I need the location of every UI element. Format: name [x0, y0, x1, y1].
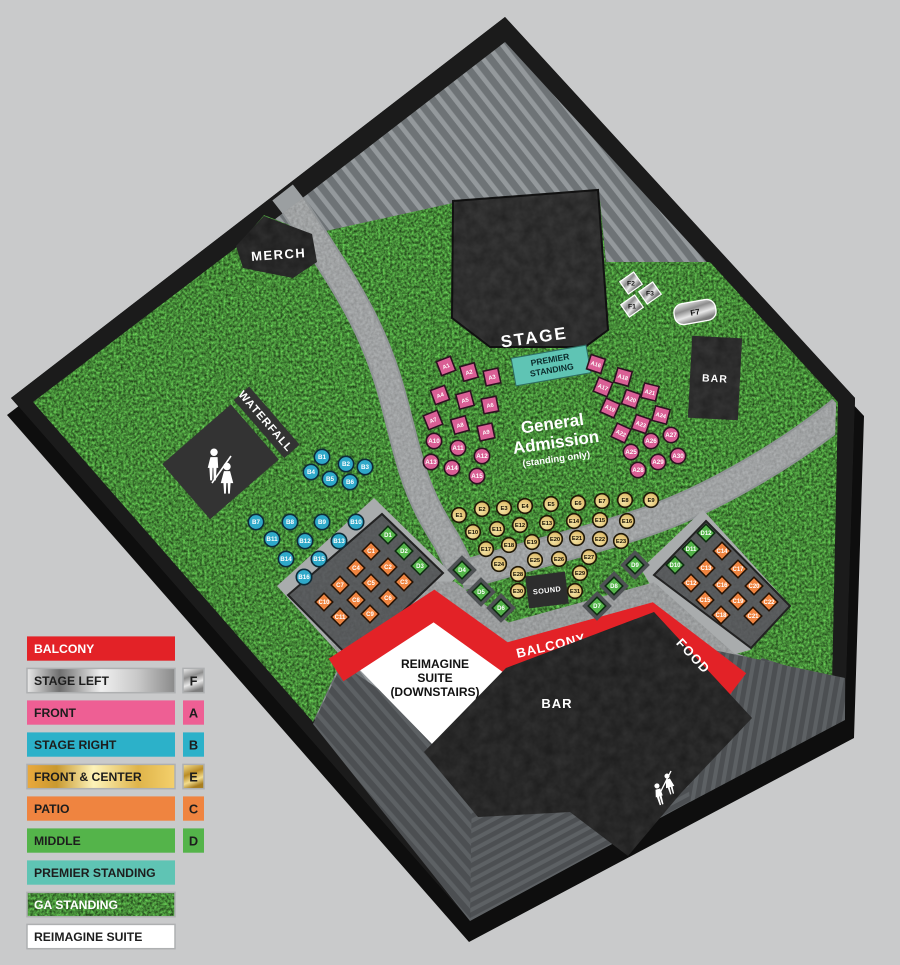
svg-text:C15: C15 [699, 598, 711, 604]
svg-text:C8: C8 [352, 598, 360, 604]
svg-text:E13: E13 [542, 521, 553, 527]
svg-text:A28: A28 [632, 467, 644, 474]
svg-text:E11: E11 [492, 527, 503, 533]
svg-text:C13: C13 [700, 566, 712, 572]
svg-text:C20: C20 [748, 584, 760, 590]
svg-text:B6: B6 [346, 479, 355, 486]
svg-text:C6: C6 [384, 596, 392, 602]
svg-text:A14: A14 [446, 465, 458, 472]
svg-text:(DOWNSTAIRS): (DOWNSTAIRS) [390, 685, 479, 699]
svg-text:A: A [189, 705, 198, 720]
svg-text:C5: C5 [367, 581, 375, 587]
svg-text:E12: E12 [515, 523, 525, 529]
svg-text:B4: B4 [307, 469, 316, 476]
svg-text:C7: C7 [336, 583, 344, 589]
svg-text:C1: C1 [367, 549, 375, 555]
svg-text:PATIO: PATIO [34, 802, 69, 816]
svg-text:A13: A13 [425, 459, 437, 466]
svg-text:C2: C2 [384, 565, 392, 571]
svg-text:C10: C10 [318, 600, 330, 606]
svg-text:D9: D9 [631, 563, 639, 569]
svg-text:F2: F2 [627, 281, 635, 288]
svg-text:BALCONY: BALCONY [34, 642, 94, 656]
svg-text:E28: E28 [513, 572, 524, 578]
svg-text:BAR: BAR [702, 372, 728, 385]
svg-text:B13: B13 [333, 538, 345, 545]
svg-text:C21: C21 [747, 614, 759, 620]
svg-text:D1: D1 [384, 533, 392, 539]
svg-text:E6: E6 [574, 501, 582, 507]
svg-text:B10: B10 [350, 519, 362, 526]
svg-text:BAR: BAR [541, 696, 572, 711]
svg-text:C12: C12 [685, 581, 697, 587]
svg-text:FRONT & CENTER: FRONT & CENTER [34, 770, 142, 784]
svg-text:A27: A27 [665, 432, 677, 439]
svg-text:C11: C11 [335, 615, 346, 621]
svg-text:E4: E4 [521, 504, 529, 510]
svg-text:A25: A25 [625, 449, 637, 456]
svg-text:D5: D5 [477, 590, 485, 596]
svg-text:B3: B3 [361, 464, 370, 471]
svg-text:REIMAGINE SUITE: REIMAGINE SUITE [34, 930, 142, 944]
svg-text:C17: C17 [732, 567, 744, 573]
svg-text:REIMAGINE: REIMAGINE [401, 657, 469, 671]
svg-text:E10: E10 [468, 530, 478, 536]
svg-text:C18: C18 [715, 613, 727, 619]
svg-text:B2: B2 [342, 461, 351, 468]
svg-text:E19: E19 [527, 540, 538, 546]
svg-text:A11: A11 [452, 445, 464, 452]
svg-text:B9: B9 [318, 519, 327, 526]
svg-text:E7: E7 [598, 499, 605, 505]
svg-text:C3: C3 [400, 580, 408, 586]
svg-text:STAGE LEFT: STAGE LEFT [34, 674, 109, 688]
svg-text:C9: C9 [366, 612, 374, 618]
svg-text:C: C [189, 801, 198, 816]
svg-text:E30: E30 [513, 589, 523, 595]
svg-text:B7: B7 [252, 519, 261, 526]
svg-text:E24: E24 [494, 562, 505, 568]
svg-text:E21: E21 [572, 536, 583, 542]
svg-text:D11: D11 [686, 547, 697, 553]
svg-text:PREMIER STANDING: PREMIER STANDING [34, 866, 156, 880]
svg-text:A10: A10 [428, 438, 440, 445]
svg-text:E17: E17 [481, 547, 491, 553]
svg-text:D10: D10 [669, 563, 681, 569]
svg-text:E20: E20 [550, 537, 560, 543]
svg-text:E9: E9 [647, 498, 655, 504]
svg-text:A30: A30 [672, 453, 684, 460]
svg-text:E25: E25 [530, 558, 541, 564]
svg-text:E16: E16 [622, 519, 633, 525]
svg-text:E3: E3 [500, 506, 508, 512]
svg-text:A12: A12 [476, 453, 488, 460]
svg-text:D3: D3 [416, 564, 424, 570]
svg-text:D: D [189, 833, 198, 848]
svg-text:C14: C14 [716, 549, 728, 555]
svg-text:E5: E5 [547, 502, 555, 508]
svg-text:D2: D2 [400, 549, 408, 555]
svg-text:MIDDLE: MIDDLE [34, 834, 81, 848]
svg-text:D12: D12 [700, 531, 712, 537]
svg-text:F3: F3 [646, 291, 654, 298]
svg-text:E29: E29 [575, 571, 586, 577]
svg-text:C4: C4 [352, 566, 360, 572]
svg-text:E2: E2 [478, 507, 485, 513]
svg-text:B11: B11 [266, 536, 278, 543]
svg-text:B16: B16 [298, 574, 310, 581]
svg-text:STAGE RIGHT: STAGE RIGHT [34, 738, 117, 752]
svg-text:GA STANDING: GA STANDING [34, 898, 118, 912]
svg-text:B8: B8 [286, 519, 295, 526]
svg-text:A15: A15 [471, 473, 483, 480]
svg-text:E31: E31 [570, 589, 581, 595]
svg-text:E23: E23 [616, 539, 627, 545]
svg-text:F: F [190, 673, 198, 688]
svg-text:E: E [189, 769, 198, 784]
svg-text:E26: E26 [554, 557, 565, 563]
svg-text:C16: C16 [716, 583, 728, 589]
svg-text:E22: E22 [595, 537, 605, 543]
svg-text:C19: C19 [732, 599, 744, 605]
svg-text:SUITE: SUITE [417, 671, 452, 685]
svg-text:D8: D8 [610, 584, 618, 590]
svg-text:E1: E1 [455, 513, 463, 519]
svg-text:FRONT: FRONT [34, 706, 77, 720]
svg-text:A29: A29 [652, 459, 664, 466]
svg-text:E27: E27 [584, 555, 594, 561]
svg-text:E18: E18 [504, 543, 515, 549]
svg-text:A26: A26 [645, 438, 657, 445]
svg-text:B14: B14 [280, 556, 292, 563]
svg-text:B: B [189, 737, 198, 752]
svg-text:E14: E14 [569, 519, 580, 525]
svg-text:E15: E15 [595, 518, 606, 524]
svg-text:B1: B1 [318, 454, 327, 461]
svg-text:B5: B5 [326, 476, 335, 483]
svg-text:F1: F1 [628, 304, 636, 311]
svg-text:C22: C22 [763, 600, 775, 606]
svg-text:B12: B12 [299, 538, 311, 545]
svg-text:E8: E8 [621, 498, 629, 504]
svg-text:D7: D7 [593, 604, 601, 610]
svg-text:D4: D4 [458, 568, 466, 574]
svg-text:D6: D6 [497, 606, 505, 612]
svg-text:B15: B15 [313, 556, 325, 563]
